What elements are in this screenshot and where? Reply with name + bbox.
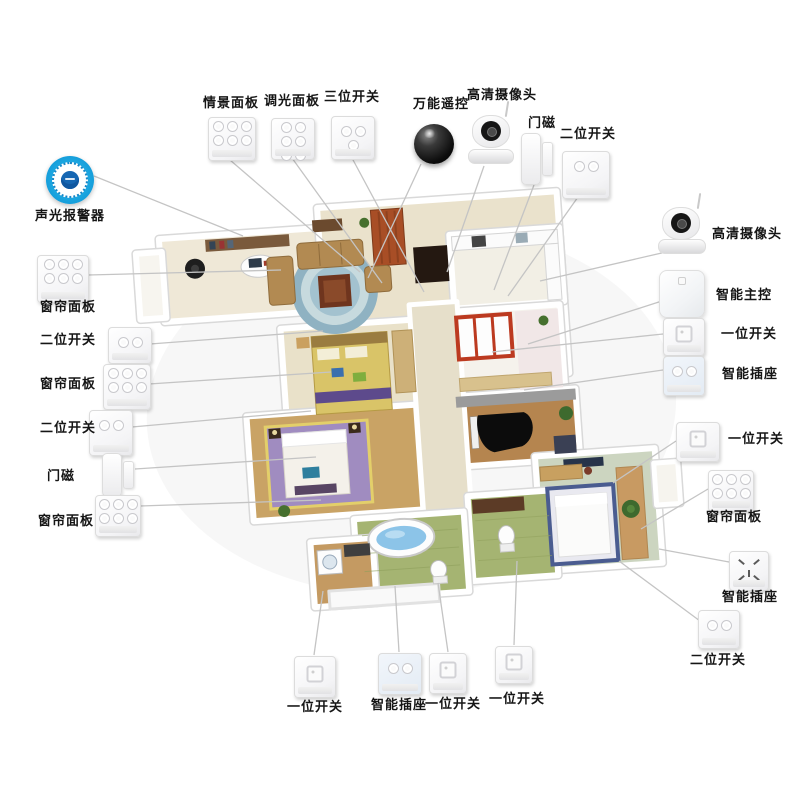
socket-buttons [381,663,419,674]
button-dot [108,368,119,379]
one-gang-switch-b1-label: 一位开关 [284,700,346,714]
button-dot [721,620,732,631]
curtain-panel-l3-label: 窗帘面板 [38,514,100,528]
two-gang-switch-top-label: 二位开关 [552,127,624,141]
one-gang-switch-b3-label: 一位开关 [486,692,548,706]
hd-camera-top-label: 高清摄像头 [460,88,544,102]
button-dot [72,259,83,270]
button-dot [341,126,352,137]
two-gang-switch-l2-label: 二位开关 [40,421,102,435]
button-dot [355,126,366,137]
button-dot [672,366,683,377]
button-dot [712,474,723,485]
panel-strip [433,683,463,690]
panel-strip [107,399,147,406]
button-dot [227,121,238,132]
panel-buttons [334,126,372,151]
connector-line [528,300,665,344]
one-gang-switch-r1-label: 一位开关 [721,327,789,341]
one-gang-switch-b2-device-icon [429,653,467,694]
connector-line [438,583,448,652]
door-sensor-left-device-icon [101,453,135,495]
connector-line [524,370,663,390]
socket-buttons [666,366,702,377]
button-dot [136,368,147,379]
button-dot [44,273,55,284]
connector-line [619,561,700,621]
button-dot [686,366,697,377]
smart-hub-device-icon [659,270,705,318]
smart-socket-r2-device-icon [729,551,769,591]
connector-line [88,270,281,275]
panel-strip [702,638,736,645]
connector-line [150,331,323,344]
smart-socket-r2-label: 智能插座 [722,590,792,604]
connector-line [540,252,666,281]
sensor-magnet [542,142,553,176]
curtain-panel-l2-label: 窗帘面板 [40,377,102,391]
camera-lens [487,127,497,137]
panel-buttons [701,620,737,631]
smart-socket-r1-label: 智能插座 [722,367,790,381]
one-gang-switch-r1-device-icon [663,318,705,356]
button-dot [72,273,83,284]
button-dot [241,121,252,132]
smart-hub-label: 智能主控 [716,288,788,302]
curtain-panel-l2-device-icon [103,364,151,410]
panel-strip [212,150,252,157]
button-dot [588,161,599,172]
camera-base [658,239,706,254]
panel-button [440,662,457,679]
camera-base [468,149,514,164]
camera-face [671,213,691,233]
button-dot [402,663,413,674]
button-dot [574,161,585,172]
hd-camera-right-device-icon [658,200,704,254]
camera-lens [677,219,687,229]
curtain-panel-l1-device-icon [37,255,89,303]
panel-strip [275,149,311,156]
connector-line [352,158,424,292]
connector-line [494,185,534,290]
panel-strip [733,580,765,587]
sound-light-alarm-label: 声光报警器 [26,209,114,223]
panel-buttons [565,161,607,172]
connector-line [292,158,382,283]
panel-button [676,326,693,343]
connector-line [135,457,316,469]
smart-socket-r1-device-icon [663,356,705,396]
hd-camera-right-label: 高清摄像头 [712,227,798,241]
button-dot [726,474,737,485]
button-dot [740,488,751,499]
panel-strip [382,684,418,691]
panel-strip [667,345,701,352]
button-dot [127,513,138,524]
sensor-body [102,453,122,497]
curtain-panel-l1-label: 窗帘面板 [30,300,106,314]
button-dot [99,513,110,524]
panel-strip [93,445,129,452]
button-dot [118,337,129,348]
camera-head [472,115,510,148]
door-sensor-top-device-icon [520,133,554,183]
button-dot [712,488,723,499]
connector-line [492,334,663,352]
button-dot [295,122,306,133]
alarm-ring [52,162,88,198]
panel-strip [112,353,148,360]
button-dot [213,135,224,146]
button-dot [58,273,69,284]
button-dot [113,513,124,524]
button-dot [740,474,751,485]
socket-hole [738,559,745,565]
panel-strip [99,526,137,533]
button-dot [726,488,737,499]
one-gang-switch-r2-device-icon [676,422,720,462]
camera-head [662,207,700,240]
curtain-panel-right-device-icon [708,470,754,512]
connector-line [641,489,708,529]
button-dot [227,135,238,146]
one-gang-switch-b2-label: 一位开关 [422,697,484,711]
panel-buttons [711,474,751,499]
panel-button [307,665,324,682]
panel-buttons [111,337,149,348]
socket-hole [753,559,760,565]
connector-line [659,549,729,562]
connector-line [140,500,321,506]
button-dot [136,382,147,393]
two-gang-switch-top-device-icon [562,151,610,199]
button-dot [113,420,124,431]
connector-line [395,586,399,652]
panel-strip [566,188,606,195]
panel-buttons [40,259,86,284]
panel-strip [41,292,85,299]
one-gang-switch-b1-device-icon [294,656,336,698]
button-dot [127,499,138,510]
button-dot [281,136,292,147]
button-dot [122,382,133,393]
hub-button [678,277,686,285]
three-gang-switch-label: 三位开关 [314,90,390,104]
panel-button [690,430,707,447]
button-dot [122,368,133,379]
universal-remote-device-icon [414,124,454,164]
door-sensor-left-label: 门磁 [47,469,91,483]
connector-line [314,591,323,655]
button-dot [295,136,306,147]
connector-line [132,411,311,427]
camera-face [481,121,501,141]
panel-strip [712,501,750,508]
two-gang-switch-lower-device-icon [698,610,740,649]
socket-hole [748,570,750,577]
button-dot [213,121,224,132]
button-dot [132,337,143,348]
three-gang-switch-device-icon [331,116,375,160]
panel-strip [298,687,332,694]
button-dot [44,259,55,270]
connector-line [447,166,484,272]
sound-light-alarm-device-icon [46,156,94,204]
connector-line [613,441,676,483]
panel-buttons [106,368,148,393]
panel-strip [667,385,701,392]
curtain-panel-right-label: 窗帘面板 [706,510,778,524]
connector-line [368,164,421,278]
two-gang-switch-l1-label: 二位开关 [40,333,102,347]
smart-socket-bottom-device-icon [378,653,422,695]
connector-line [230,160,360,272]
connector-line [94,176,243,236]
scene-panel-device-icon [208,117,256,161]
panel-buttons [211,121,253,146]
button-dot [108,382,119,393]
diagram-canvas: 情景面板调光面板三位开关万能遥控高清摄像头门磁二位开关高清摄像头智能主控一位开关… [0,0,800,800]
two-gang-switch-lower-label: 二位开关 [690,653,762,667]
two-gang-switch-l1-device-icon [108,327,152,364]
connector-line [149,372,331,384]
alarm-core [61,171,79,189]
sensor-body [521,133,541,185]
button-dot [388,663,399,674]
sphere-highlight [423,129,437,138]
button-dot [241,135,252,146]
panel-strip [335,149,371,156]
button-dot [113,499,124,510]
hd-camera-top-device-icon [468,108,512,164]
panel-strip [499,673,529,680]
panel-buttons [98,499,138,524]
one-gang-switch-b3-device-icon [495,646,533,684]
button-dot [99,499,110,510]
connector-line [514,561,517,645]
button-dot [707,620,718,631]
button-dot [281,122,292,133]
smart-socket-bottom-label: 智能插座 [368,698,430,712]
sensor-magnet [123,461,134,490]
button-dot [58,259,69,270]
connector-line [508,197,578,296]
one-gang-switch-r2-label: 一位开关 [728,432,796,446]
panel-button [506,654,523,671]
panel-strip [680,451,716,458]
dimmer-panel-device-icon [271,118,315,160]
curtain-panel-l3-device-icon [95,495,141,537]
